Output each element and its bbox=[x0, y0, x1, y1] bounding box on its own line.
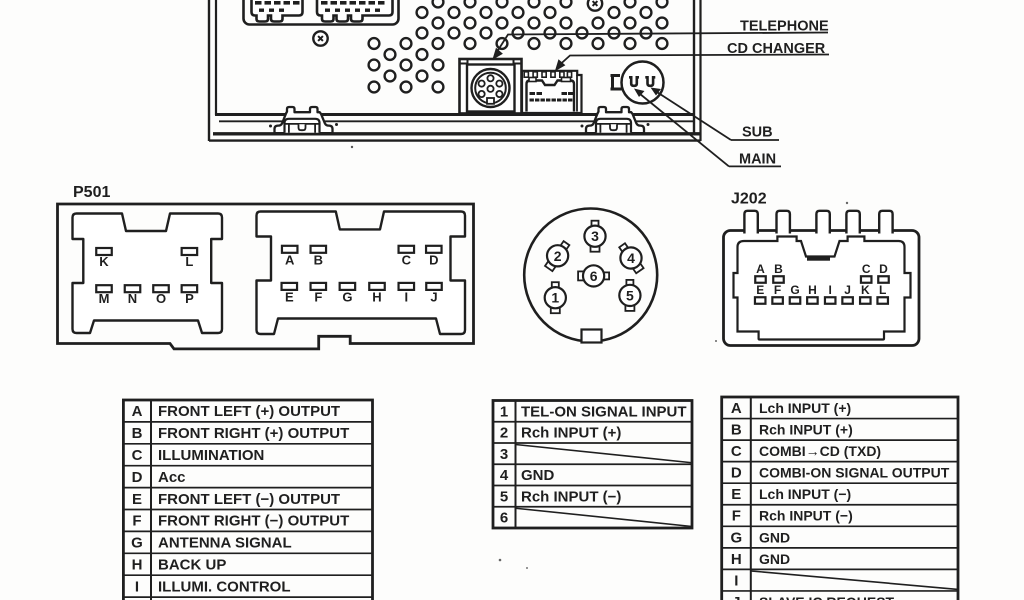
svg-text:GND: GND bbox=[759, 529, 790, 545]
svg-text:FRONT LEFT (+) OUTPUT: FRONT LEFT (+) OUTPUT bbox=[158, 403, 340, 420]
svg-text:E: E bbox=[132, 491, 142, 508]
svg-text:2: 2 bbox=[500, 425, 508, 442]
svg-text:CD CHANGER: CD CHANGER bbox=[727, 41, 826, 57]
svg-text:2: 2 bbox=[554, 248, 562, 264]
svg-text:I: I bbox=[404, 290, 408, 305]
svg-text:COMBI-ON SIGNAL OUTPUT: COMBI-ON SIGNAL OUTPUT bbox=[759, 465, 950, 481]
svg-text:F: F bbox=[314, 290, 322, 305]
svg-text:MAIN: MAIN bbox=[739, 152, 776, 168]
svg-text:F: F bbox=[132, 513, 141, 530]
svg-text:B: B bbox=[774, 262, 783, 276]
svg-text:D: D bbox=[879, 262, 888, 276]
svg-text:Lch INPUT (−): Lch INPUT (−) bbox=[759, 486, 851, 502]
svg-text:J: J bbox=[430, 290, 437, 305]
svg-text:TELEPHONE: TELEPHONE bbox=[740, 19, 829, 35]
svg-text:Rch INPUT (+): Rch INPUT (+) bbox=[759, 422, 853, 438]
svg-text:H: H bbox=[132, 556, 143, 573]
svg-text:B: B bbox=[132, 425, 143, 442]
svg-text:I: I bbox=[734, 572, 738, 589]
svg-text:5: 5 bbox=[500, 488, 508, 505]
svg-text:A: A bbox=[731, 400, 742, 417]
svg-text:C: C bbox=[132, 447, 143, 464]
svg-text:M: M bbox=[99, 291, 110, 306]
svg-text:D: D bbox=[429, 253, 438, 268]
svg-text:G: G bbox=[342, 290, 352, 305]
svg-text:B: B bbox=[314, 253, 323, 268]
svg-text:K: K bbox=[99, 254, 109, 269]
svg-text:F: F bbox=[774, 283, 781, 297]
svg-text:G: G bbox=[131, 535, 143, 552]
svg-text:ILLUMI. CONTROL: ILLUMI. CONTROL bbox=[158, 578, 290, 595]
svg-text:C: C bbox=[862, 262, 871, 276]
svg-text:G: G bbox=[730, 529, 742, 546]
svg-text:I: I bbox=[829, 283, 832, 297]
svg-text:BACK UP: BACK UP bbox=[158, 556, 226, 573]
svg-text:L: L bbox=[879, 283, 886, 297]
svg-text:Lch INPUT (+): Lch INPUT (+) bbox=[759, 400, 851, 416]
svg-text:COMBI→CD (TXD): COMBI→CD (TXD) bbox=[759, 443, 881, 459]
svg-text:Rch INPUT (+): Rch INPUT (+) bbox=[521, 425, 621, 442]
svg-text:4: 4 bbox=[500, 467, 509, 484]
svg-text:E: E bbox=[285, 290, 294, 305]
svg-text:6: 6 bbox=[590, 268, 598, 284]
svg-text:I: I bbox=[135, 578, 139, 595]
svg-text:E: E bbox=[731, 486, 741, 503]
svg-text:ANTENNA SIGNAL: ANTENNA SIGNAL bbox=[158, 535, 292, 552]
svg-text:FRONT RIGHT (+) OUTPUT: FRONT RIGHT (+) OUTPUT bbox=[158, 425, 349, 442]
svg-text:J: J bbox=[844, 283, 851, 297]
svg-text:K: K bbox=[861, 283, 870, 297]
svg-text:J: J bbox=[732, 594, 740, 600]
svg-text:A: A bbox=[132, 403, 143, 420]
svg-text:E: E bbox=[756, 283, 764, 297]
svg-text:4: 4 bbox=[627, 250, 635, 266]
svg-text:3: 3 bbox=[591, 228, 599, 244]
svg-text:H: H bbox=[372, 290, 381, 305]
svg-text:D: D bbox=[132, 469, 143, 486]
svg-text:G: G bbox=[790, 283, 799, 297]
svg-text:1: 1 bbox=[551, 290, 559, 306]
svg-text:TEL-ON SIGNAL INPUT: TEL-ON SIGNAL INPUT bbox=[521, 403, 687, 420]
svg-text:C: C bbox=[402, 253, 412, 268]
svg-text:1: 1 bbox=[500, 403, 508, 420]
svg-text:FRONT LEFT (−) OUTPUT: FRONT LEFT (−) OUTPUT bbox=[158, 491, 340, 508]
svg-text:A: A bbox=[285, 253, 295, 268]
svg-text:P501: P501 bbox=[73, 184, 110, 201]
svg-text:SLAVE IC REQUEST: SLAVE IC REQUEST bbox=[759, 594, 895, 600]
svg-text:A: A bbox=[756, 262, 765, 276]
svg-text:ILLUMINATION: ILLUMINATION bbox=[158, 447, 264, 464]
svg-text:H: H bbox=[731, 551, 742, 568]
svg-text:Rch INPUT (−): Rch INPUT (−) bbox=[521, 488, 621, 505]
svg-text:P: P bbox=[185, 291, 194, 306]
svg-text:3: 3 bbox=[500, 446, 508, 463]
svg-text:GND: GND bbox=[521, 467, 555, 484]
svg-text:J202: J202 bbox=[731, 191, 767, 208]
svg-text:H: H bbox=[808, 283, 817, 297]
svg-text:6: 6 bbox=[500, 510, 508, 527]
svg-text:GND: GND bbox=[759, 551, 790, 567]
svg-text:FRONT RIGHT (−) OUTPUT: FRONT RIGHT (−) OUTPUT bbox=[158, 513, 349, 530]
svg-text:L: L bbox=[185, 254, 193, 269]
svg-text:C: C bbox=[731, 443, 742, 460]
svg-text:D: D bbox=[731, 465, 742, 482]
svg-text:O: O bbox=[156, 291, 166, 306]
svg-text:F: F bbox=[732, 508, 741, 525]
svg-text:5: 5 bbox=[626, 287, 634, 303]
svg-text:SUB: SUB bbox=[742, 125, 773, 141]
svg-text:N: N bbox=[128, 291, 137, 306]
svg-text:Acc: Acc bbox=[158, 469, 186, 486]
svg-text:B: B bbox=[731, 422, 742, 439]
svg-text:Rch INPUT (−): Rch INPUT (−) bbox=[759, 508, 853, 524]
